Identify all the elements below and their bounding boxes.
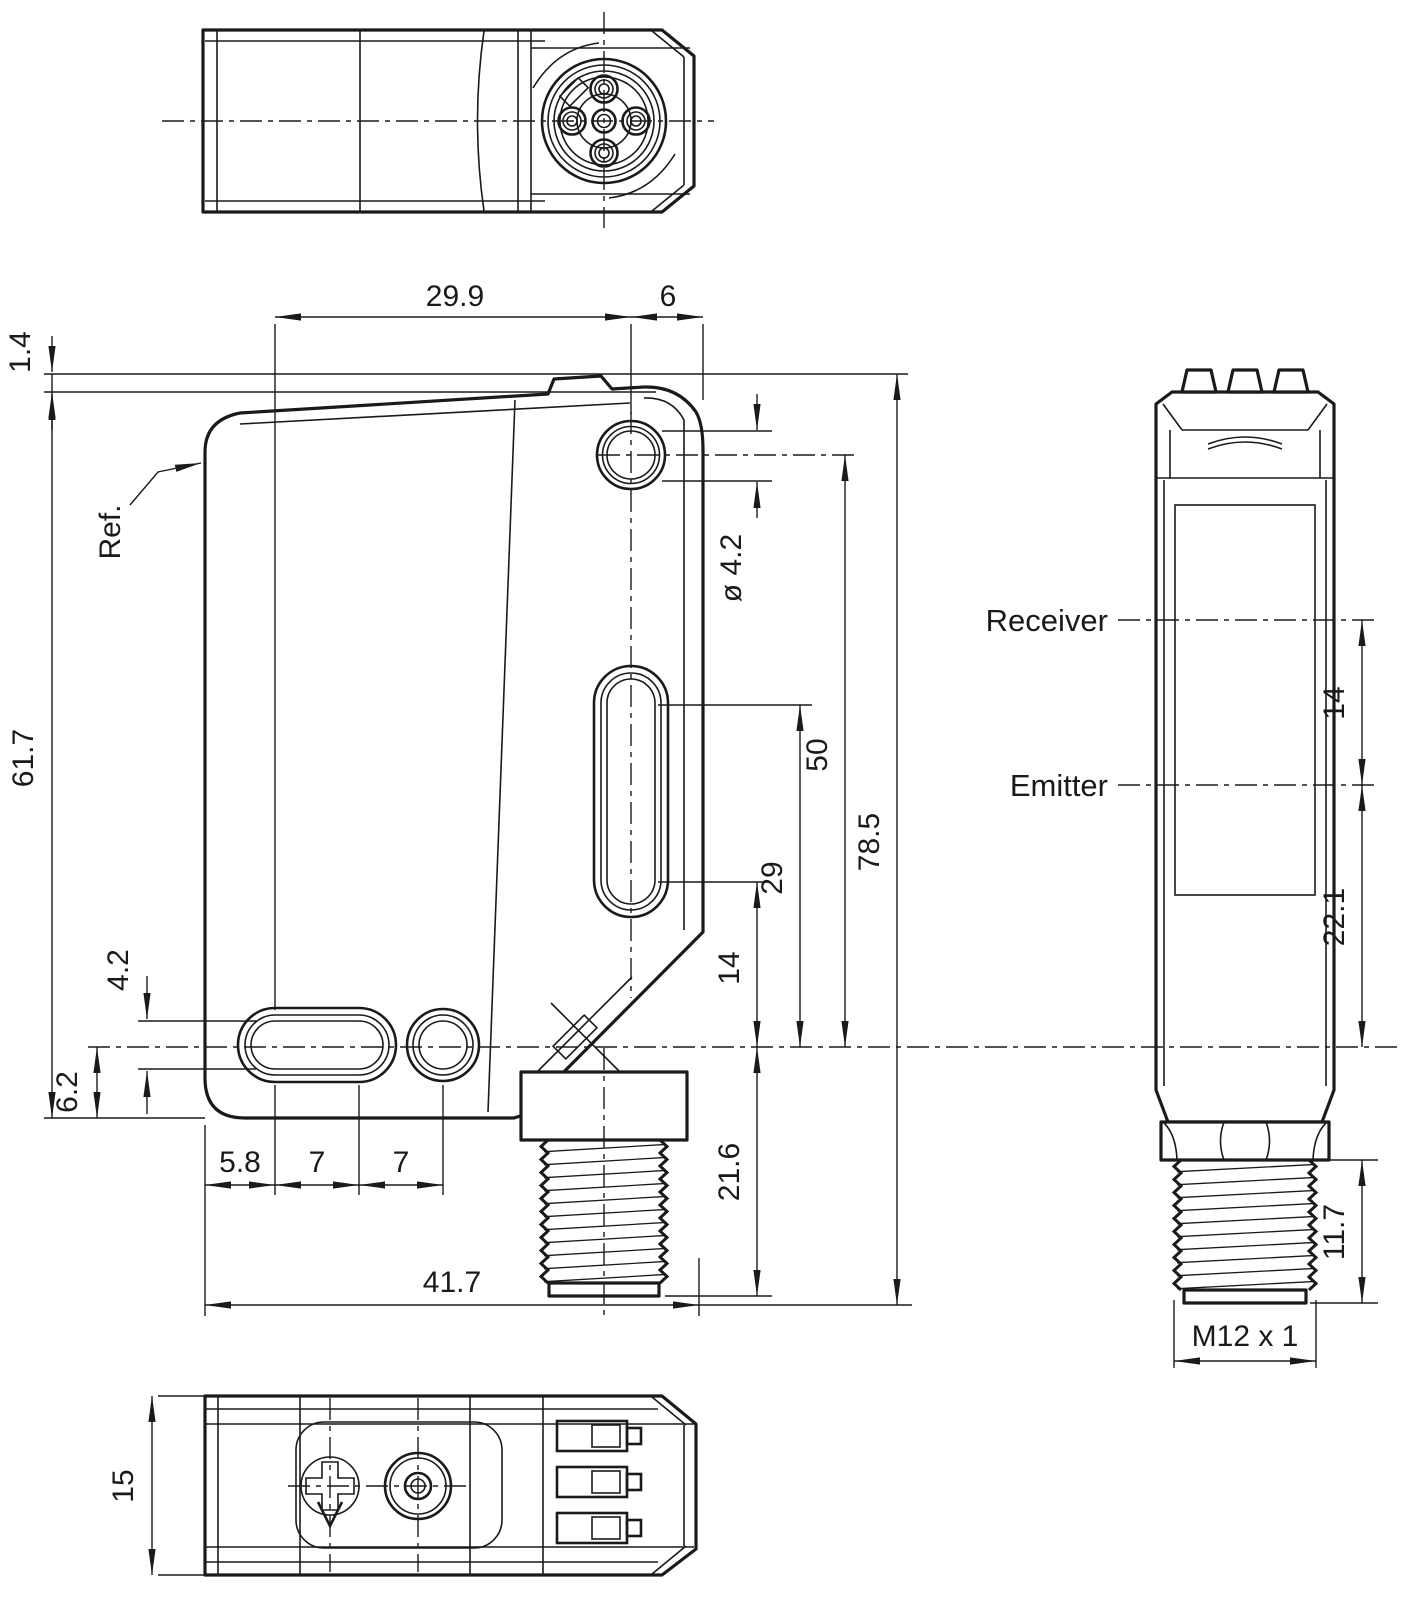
- dim-receiver-to-emitter: 14: [1318, 686, 1351, 719]
- top-tab: [1274, 370, 1308, 392]
- dim-emitter-to-mounting-axis: 22.1: [1318, 888, 1351, 946]
- dim-mounting-hole-diameter: ø 4.2: [715, 534, 748, 602]
- dim-edge-to-slot-start: 5.8: [219, 1146, 261, 1179]
- label-emitter: Emitter: [1010, 768, 1108, 803]
- dim-hole-axis-to-optical-axis: 50: [801, 738, 834, 771]
- dim-slot-height: 4.2: [102, 949, 135, 991]
- dim-overall-width: 41.7: [423, 1266, 481, 1299]
- dim-thread-length: 11.7: [1318, 1204, 1351, 1260]
- drawing-canvas: 29.9 6 1.4 61.7 Ref. 4.2 6.2 5.8 7 7: [0, 0, 1417, 1606]
- hex-flange: [1161, 1122, 1329, 1160]
- dim-tab-offset: 1.4: [4, 331, 37, 373]
- side-thread-end: [1184, 1290, 1306, 1303]
- dim-slot-top-to-optical-axis: 29: [756, 861, 789, 894]
- dim-axis-to-bottom-face: 6.2: [51, 1071, 84, 1113]
- dim-overall-height: 78.5: [853, 813, 886, 871]
- top-tab: [1228, 370, 1262, 392]
- top-tab: [1182, 370, 1216, 392]
- dim-slot-bottom-to-optical-axis: 14: [713, 951, 746, 984]
- side-thread: [1174, 1160, 1316, 1290]
- label-receiver: Receiver: [986, 603, 1108, 638]
- dim-slot-pitch-a: 7: [309, 1146, 326, 1179]
- dim-optical-axis-to-connector-end: 21.6: [713, 1143, 746, 1201]
- top-view: [162, 12, 714, 228]
- dim-slot-pitch-b: 7: [393, 1146, 410, 1179]
- front-view: [205, 376, 703, 1296]
- dimensions-bottom: 15: [107, 1396, 210, 1575]
- side-housing-outline: [1156, 392, 1334, 1122]
- dim-housing-width: 15: [107, 1469, 140, 1502]
- dim-connector-thread: M12 x 1: [1192, 1320, 1299, 1353]
- dim-width-to-hole-axis: 29.9: [426, 280, 484, 313]
- side-view: [1156, 370, 1334, 1303]
- sensor-dimensional-drawing: 29.9 6 1.4 61.7 Ref. 4.2 6.2 5.8 7 7: [0, 0, 1417, 1606]
- dim-body-height: 61.7: [7, 729, 40, 787]
- dim-hole-axis-to-edge: 6: [660, 280, 677, 313]
- label-ref: Ref.: [94, 504, 127, 559]
